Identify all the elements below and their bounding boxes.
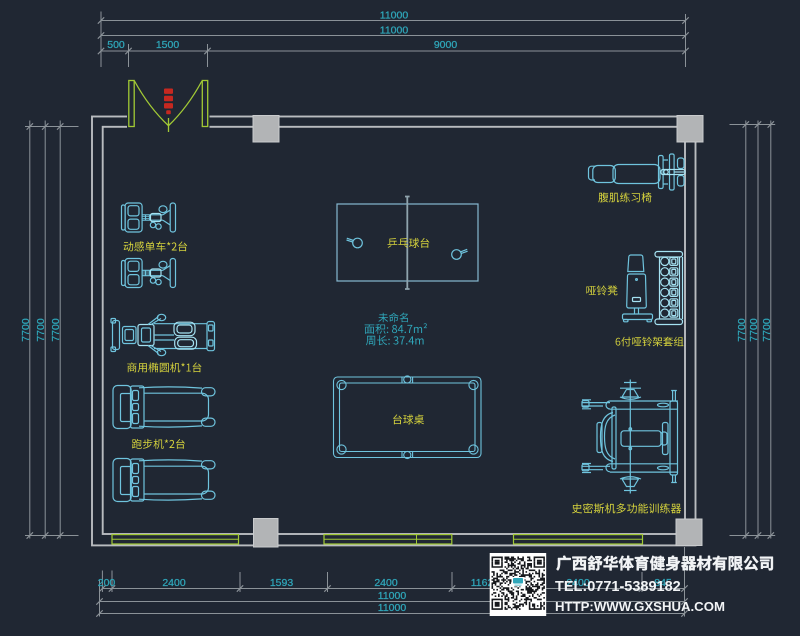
svg-text:200: 200 [98, 577, 116, 589]
svg-text:7700: 7700 [748, 318, 760, 342]
svg-text:11000: 11000 [380, 9, 409, 21]
svg-text:11000: 11000 [380, 24, 409, 36]
svg-text:1500: 1500 [156, 39, 180, 51]
svg-text:7700: 7700 [50, 318, 62, 342]
svg-text:11000: 11000 [378, 590, 407, 602]
svg-text:1593: 1593 [270, 577, 294, 589]
svg-text:11000: 11000 [378, 602, 407, 614]
svg-text:HTTP:WWW.GXSHUA.COM: HTTP:WWW.GXSHUA.COM [555, 599, 725, 614]
svg-text:TEL:0771-5389182: TEL:0771-5389182 [555, 579, 681, 595]
svg-text:7700: 7700 [761, 318, 773, 342]
svg-text:9000: 9000 [434, 39, 458, 51]
svg-text:7700: 7700 [736, 318, 748, 342]
svg-text:7700: 7700 [35, 318, 47, 342]
svg-text:2400: 2400 [162, 577, 186, 589]
svg-text:500: 500 [107, 39, 125, 51]
svg-text:7700: 7700 [20, 318, 32, 342]
svg-text:2400: 2400 [374, 577, 398, 589]
